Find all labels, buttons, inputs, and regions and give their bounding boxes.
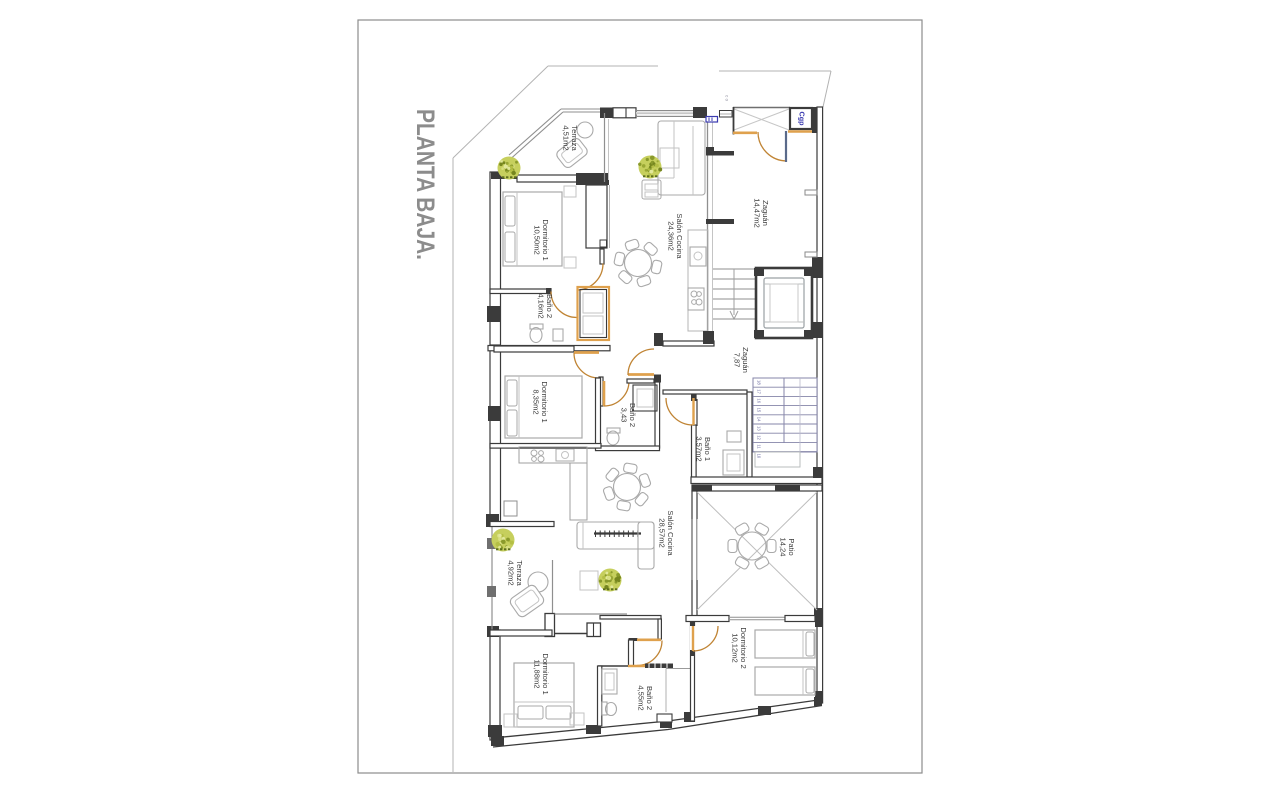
svg-text:18: 18 [757,380,762,385]
svg-text:Terraza4,92m2: Terraza4,92m2 [506,560,524,586]
svg-text:Patio14,24: Patio14,24 [778,537,796,556]
svg-text:13: 13 [757,426,762,431]
svg-text:Zaguán14,47m2: Zaguán14,47m2 [752,198,770,228]
svg-text:16: 16 [757,398,762,403]
svg-text:Dormitorio 110,50m2: Dormitorio 110,50m2 [532,219,550,260]
svg-text:11: 11 [757,444,762,449]
svg-text:Terraza4,51m2: Terraza4,51m2 [561,125,579,151]
svg-text:Dormitorio 210,12m2: Dormitorio 210,12m2 [730,627,748,668]
svg-text:15: 15 [757,408,762,413]
svg-text:14: 14 [757,417,762,422]
svg-text:Dormitorio 111,88m2: Dormitorio 111,88m2 [532,653,550,694]
svg-text:12: 12 [757,435,762,440]
svg-text:17: 17 [757,389,762,394]
svg-text:Baño 24,16m2: Baño 24,16m2 [536,293,554,318]
svg-text:Cgp: Cgp [797,112,806,127]
svg-text:c o: c o [725,95,730,102]
svg-text:PLANTA BAJA.: PLANTA BAJA. [411,109,439,260]
svg-text:Baño 13,57m2: Baño 13,57m2 [694,436,712,461]
svg-text:Baño 24,55m2: Baño 24,55m2 [636,685,654,710]
svg-text:10: 10 [757,454,762,459]
